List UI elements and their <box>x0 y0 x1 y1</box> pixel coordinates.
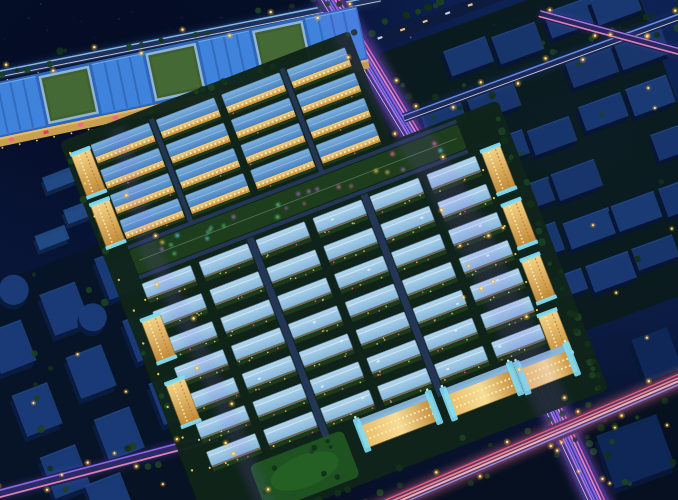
street-light <box>479 475 481 477</box>
street-light <box>468 265 470 267</box>
street-light <box>671 228 673 230</box>
street-light <box>114 452 116 454</box>
tree <box>488 443 493 448</box>
street-light <box>517 82 519 84</box>
street-light <box>395 79 397 81</box>
street-light <box>582 58 584 60</box>
street-light <box>224 442 226 444</box>
street-light <box>646 337 648 339</box>
street-light <box>125 391 127 393</box>
tree <box>457 106 462 111</box>
star <box>37 72 38 73</box>
tree <box>63 486 69 492</box>
street-light <box>154 235 156 237</box>
star <box>410 37 412 39</box>
tree <box>289 3 294 8</box>
street-light <box>93 46 95 48</box>
tree <box>654 32 660 38</box>
street-light <box>77 353 79 355</box>
street-light <box>415 105 417 107</box>
tree <box>432 94 439 101</box>
street-light <box>620 414 622 416</box>
street-light <box>518 368 520 370</box>
tree <box>124 445 131 452</box>
tree <box>145 463 152 470</box>
street-light <box>594 35 596 37</box>
street-light <box>492 281 494 283</box>
street-light <box>156 283 158 285</box>
tree <box>643 14 649 20</box>
street-light <box>317 17 319 19</box>
street-light <box>131 145 133 147</box>
street-light <box>544 57 546 59</box>
city-night-rendering <box>0 0 678 500</box>
tree <box>56 47 63 54</box>
street-light <box>666 424 668 426</box>
street-light <box>196 367 198 369</box>
tree <box>63 49 67 53</box>
street-light <box>231 403 233 405</box>
street-light <box>487 235 489 237</box>
street-light <box>435 471 437 473</box>
street-light <box>601 478 603 480</box>
street-light <box>577 410 579 412</box>
street-light <box>52 70 54 72</box>
street-light <box>502 227 504 229</box>
street-light <box>176 438 178 440</box>
street-light <box>609 482 611 484</box>
street-light <box>267 488 269 490</box>
street-light <box>452 106 454 108</box>
tree <box>651 14 655 18</box>
street-light <box>554 324 556 326</box>
street-light <box>647 87 649 89</box>
street-light <box>394 133 396 135</box>
street-light <box>5 64 7 66</box>
street-light <box>609 33 611 35</box>
street-light <box>463 297 465 299</box>
street-light <box>140 52 142 54</box>
street-light <box>459 245 461 247</box>
street-light <box>563 397 565 399</box>
street-light <box>561 441 563 443</box>
tree <box>550 49 556 55</box>
tree <box>490 95 494 99</box>
street-light <box>442 156 444 158</box>
street-light <box>349 3 351 5</box>
street-light <box>46 489 48 491</box>
street-light <box>525 316 527 318</box>
tree <box>431 115 435 119</box>
street-light <box>592 224 594 226</box>
street-light <box>556 449 558 451</box>
street-light <box>61 474 63 476</box>
street-light <box>506 441 508 443</box>
tree <box>255 7 261 13</box>
street-light <box>654 107 656 109</box>
street-light <box>550 445 552 447</box>
street-light <box>347 56 349 58</box>
street-light <box>674 10 676 12</box>
street-light <box>549 9 551 11</box>
street-light <box>228 34 230 36</box>
street-light <box>33 402 35 404</box>
street-light <box>440 209 442 211</box>
night-aerial-rendering <box>0 0 678 500</box>
tree <box>462 83 466 87</box>
street-light <box>480 81 482 83</box>
street-light <box>162 483 164 485</box>
street-light <box>270 11 272 13</box>
street-light <box>232 453 234 455</box>
street-light <box>181 28 183 30</box>
street-light <box>648 380 650 382</box>
street-light <box>614 427 616 429</box>
street-light <box>646 35 648 37</box>
street-light <box>578 470 580 472</box>
street-light <box>135 465 137 467</box>
street-light <box>480 287 482 289</box>
street-light <box>125 194 127 196</box>
street-light <box>192 317 194 319</box>
street-light <box>87 461 89 463</box>
street-light <box>615 292 617 294</box>
